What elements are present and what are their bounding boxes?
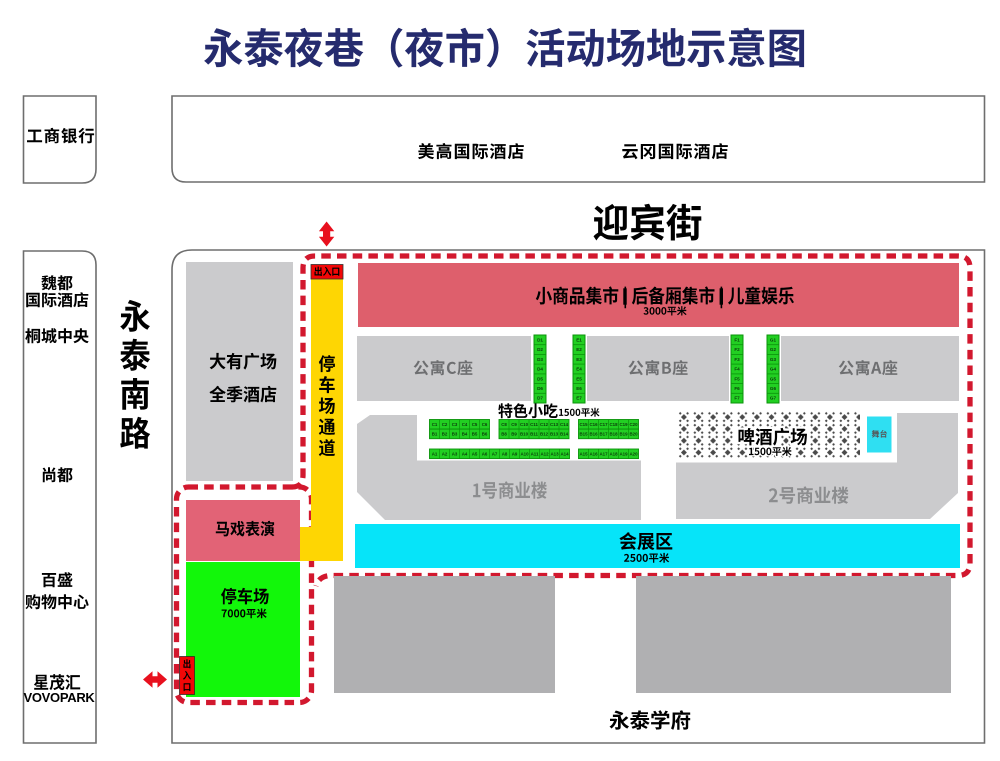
svg-text:A7: A7 (492, 451, 498, 456)
svg-text:C10: C10 (520, 422, 529, 427)
svg-text:C19: C19 (619, 422, 628, 427)
svg-text:A2: A2 (442, 451, 448, 456)
svg-text:C9: C9 (511, 422, 517, 427)
svg-text:A18: A18 (609, 451, 618, 456)
svg-text:C8: C8 (501, 422, 507, 427)
svg-text:B2: B2 (442, 432, 448, 437)
svg-text:C17: C17 (599, 422, 608, 427)
svg-text:C3: C3 (452, 422, 458, 427)
svg-text:F5: F5 (734, 376, 740, 381)
svg-text:A9: A9 (512, 451, 518, 456)
svg-text:D3: D3 (537, 357, 543, 362)
svg-text:B5: B5 (472, 432, 478, 437)
svg-text:G3: G3 (770, 357, 777, 362)
svg-text:G2: G2 (770, 347, 777, 352)
svg-text:C5: C5 (472, 422, 478, 427)
svg-text:A14: A14 (560, 451, 569, 456)
svg-text:B20: B20 (629, 432, 638, 437)
svg-text:C4: C4 (462, 422, 468, 427)
svg-text:A20: A20 (629, 451, 638, 456)
svg-text:D4: D4 (537, 367, 543, 372)
svg-text:D1: D1 (537, 338, 543, 343)
svg-text:C16: C16 (589, 422, 598, 427)
svg-text:B11: B11 (530, 432, 538, 437)
svg-text:A19: A19 (619, 451, 628, 456)
svg-text:B12: B12 (540, 432, 549, 437)
svg-text:VOVOPARK: VOVOPARK (23, 690, 95, 705)
svg-text:G1: G1 (770, 338, 777, 343)
svg-text:B17: B17 (599, 432, 608, 437)
svg-text:F2: F2 (734, 347, 740, 352)
svg-text:A10: A10 (520, 451, 529, 456)
svg-text:C1: C1 (432, 422, 438, 427)
svg-text:A16: A16 (589, 451, 598, 456)
svg-text:B16: B16 (589, 432, 598, 437)
svg-text:C6: C6 (482, 422, 488, 427)
svg-text:A1: A1 (432, 451, 438, 456)
svg-text:A6: A6 (482, 451, 488, 456)
svg-text:B10: B10 (520, 432, 529, 437)
svg-text:E5: E5 (576, 376, 582, 381)
svg-text:F7: F7 (734, 396, 740, 401)
svg-text:A3: A3 (452, 451, 458, 456)
svg-text:A13: A13 (550, 451, 559, 456)
svg-text:B19: B19 (619, 432, 628, 437)
svg-text:B3: B3 (452, 432, 458, 437)
svg-text:B6: B6 (482, 432, 488, 437)
svg-text:E1: E1 (576, 338, 582, 343)
svg-text:B4: B4 (462, 432, 468, 437)
svg-text:D5: D5 (537, 376, 543, 381)
svg-text:B9: B9 (511, 432, 517, 437)
svg-text:A12: A12 (540, 451, 549, 456)
svg-text:E4: E4 (576, 367, 582, 372)
svg-text:G6: G6 (770, 386, 777, 391)
svg-text:C20: C20 (629, 422, 638, 427)
svg-text:A17: A17 (599, 451, 608, 456)
svg-text:A15: A15 (579, 451, 588, 456)
svg-text:E7: E7 (576, 396, 582, 401)
svg-text:A5: A5 (472, 451, 478, 456)
svg-text:A4: A4 (462, 451, 468, 456)
svg-text:B13: B13 (550, 432, 559, 437)
svg-text:F4: F4 (734, 367, 740, 372)
svg-text:G4: G4 (770, 367, 777, 372)
svg-text:A11: A11 (531, 451, 539, 456)
svg-text:B1: B1 (432, 432, 438, 437)
svg-text:E3: E3 (576, 357, 582, 362)
svg-text:D6: D6 (537, 386, 543, 391)
svg-text:D2: D2 (537, 347, 543, 352)
svg-text:C2: C2 (442, 422, 448, 427)
svg-text:B15: B15 (579, 432, 588, 437)
svg-text:G5: G5 (770, 376, 777, 381)
svg-text:C18: C18 (609, 422, 618, 427)
svg-text:B8: B8 (501, 432, 507, 437)
svg-text:F3: F3 (734, 357, 740, 362)
svg-text:E2: E2 (576, 347, 582, 352)
svg-text:E6: E6 (576, 386, 582, 391)
svg-text:C11: C11 (530, 422, 538, 427)
svg-text:C14: C14 (560, 422, 569, 427)
svg-text:D7: D7 (537, 396, 543, 401)
svg-text:C12: C12 (540, 422, 549, 427)
svg-text:F6: F6 (734, 386, 740, 391)
svg-text:B18: B18 (609, 432, 618, 437)
svg-text:C13: C13 (550, 422, 559, 427)
svg-text:C15: C15 (579, 422, 588, 427)
svg-text:F1: F1 (734, 338, 740, 343)
svg-text:B14: B14 (560, 432, 569, 437)
svg-text:A8: A8 (502, 451, 508, 456)
svg-text:G7: G7 (770, 396, 777, 401)
